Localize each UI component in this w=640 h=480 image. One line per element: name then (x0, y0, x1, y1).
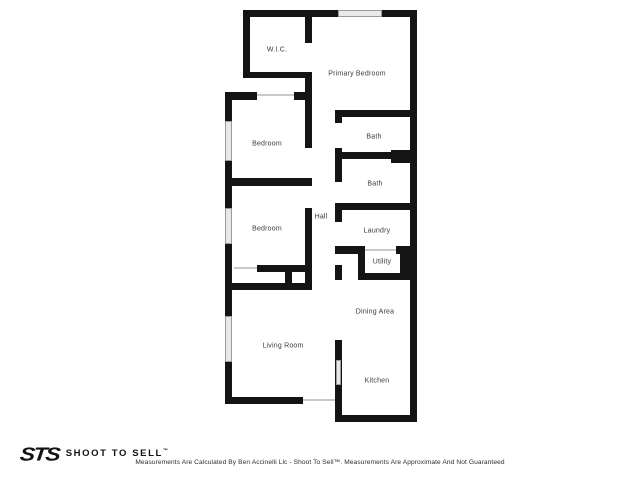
footer: STS SHOOT TO SELL™ Measurements Are Calc… (0, 438, 640, 480)
room-label-kitchen: Kitchen (365, 378, 390, 385)
wall (243, 10, 250, 78)
room-label-laundry: Laundry (364, 228, 391, 235)
wall (335, 110, 410, 117)
wall-chase (400, 246, 413, 280)
utility-door-line (363, 249, 396, 251)
sts-logo-wordmark: SHOOT TO SELL™ (66, 448, 168, 459)
wall (225, 283, 312, 290)
wall (335, 415, 417, 422)
wall (257, 265, 305, 272)
wall (335, 265, 342, 280)
measurements-disclaimer: Measurements Are Calculated By Ben Accin… (0, 459, 640, 466)
wall-chase (391, 150, 411, 163)
wall (335, 203, 410, 210)
room-label-hall: Hall (315, 214, 328, 221)
room-label-wic: W.I.C. (267, 47, 287, 54)
room-label-bath-1: Bath (366, 134, 381, 141)
wall (225, 397, 303, 404)
floor-plan: W.I.C. Primary Bedroom Bath Bedroom Bath… (0, 0, 640, 480)
wall (305, 208, 312, 290)
wall (410, 10, 417, 422)
room-label-dining-area: Dining Area (356, 309, 394, 316)
entry-door-line (303, 399, 335, 401)
room-label-living-room: Living Room (262, 343, 303, 350)
wall (243, 72, 312, 78)
wall (305, 72, 312, 148)
wall (285, 265, 292, 290)
window (338, 10, 382, 17)
window (336, 360, 341, 385)
wall (335, 110, 342, 123)
room-label-primary-bedroom: Primary Bedroom (328, 71, 385, 78)
wall (243, 10, 417, 17)
sts-logo-wordmark-text: SHOOT TO SELL (66, 449, 163, 460)
room-label-bedroom-1: Bedroom (252, 141, 282, 148)
window (225, 121, 232, 161)
room-label-bedroom-2: Bedroom (252, 226, 282, 233)
wall (225, 92, 257, 100)
window (225, 208, 232, 244)
room-label-utility: Utility (373, 259, 392, 266)
room-label-bath-2: Bath (367, 181, 382, 188)
floor-plan-page: W.I.C. Primary Bedroom Bath Bedroom Bath… (0, 0, 640, 480)
trademark-symbol: ™ (163, 448, 168, 454)
closet-door-line (257, 94, 294, 96)
closet-door-line (234, 267, 257, 269)
wall (305, 10, 312, 43)
wall (225, 178, 312, 186)
wall (335, 203, 342, 222)
wall (335, 152, 393, 159)
window (225, 316, 232, 362)
